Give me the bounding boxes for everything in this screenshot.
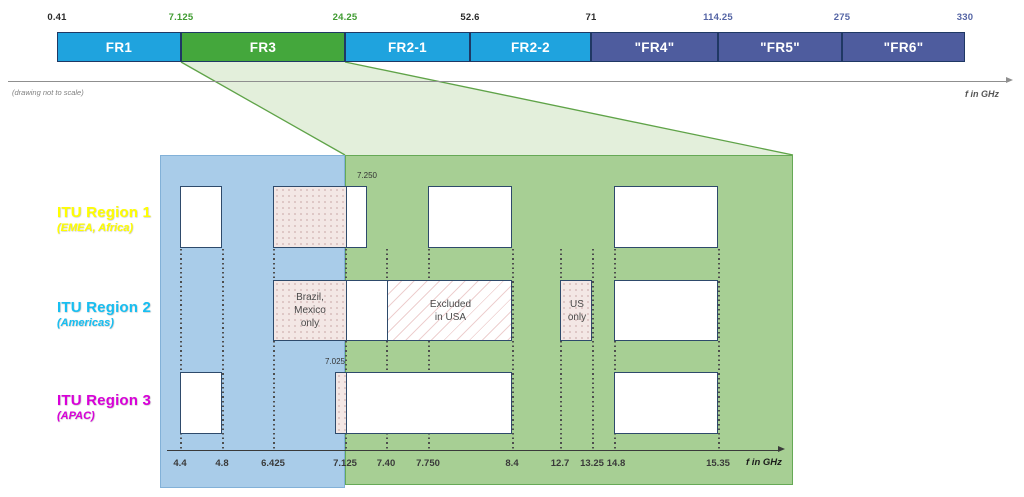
frequency-band: "FR4" bbox=[591, 32, 718, 62]
allocation-box-itu-region-3 bbox=[614, 372, 718, 434]
axis-tick-label: 4.4 bbox=[173, 458, 186, 469]
scale-note: (drawing not to scale) bbox=[12, 88, 84, 97]
allocation-box-itu-region-1 bbox=[273, 186, 367, 248]
allocation-box-itu-region-1 bbox=[614, 186, 718, 248]
frequency-band: FR1 bbox=[57, 32, 181, 62]
box-segment-hatch: Excluded in USA bbox=[387, 281, 512, 340]
spectrum-diagram: (drawing not to scale) f in GHz f in GHz… bbox=[0, 0, 1024, 497]
axis-tick-label: 4.8 bbox=[215, 458, 228, 469]
axis-tick-label: 7.750 bbox=[416, 458, 440, 469]
box-segment-pink bbox=[336, 373, 346, 433]
top-axis-line bbox=[8, 81, 1006, 82]
region-title: ITU Region 2 bbox=[57, 299, 151, 316]
allocation-box-itu-region-1 bbox=[428, 186, 512, 248]
box-frequency-label: 7.250 bbox=[357, 171, 377, 180]
top-axis-unit-label: f in GHz bbox=[965, 89, 999, 99]
axis-tick-label: 7.40 bbox=[377, 458, 396, 469]
axis-tick-label: 7.125 bbox=[333, 458, 357, 469]
frequency-band: FR2-2 bbox=[470, 32, 591, 62]
bottom-axis-line bbox=[167, 450, 778, 451]
segment-label: Brazil, Mexico only bbox=[274, 281, 346, 340]
axis-tick-label: 13.25 bbox=[580, 458, 604, 469]
segment-label: Excluded in USA bbox=[388, 281, 512, 340]
segment-label: US only bbox=[561, 281, 592, 340]
axis-tick-label: 14.8 bbox=[607, 458, 626, 469]
box-segment-white bbox=[346, 373, 512, 433]
box-segment-white bbox=[346, 281, 387, 340]
box-segment-pink: Brazil, Mexico only bbox=[274, 281, 346, 340]
region-label: ITU Region 3(APAC) bbox=[57, 392, 151, 423]
region-subtitle: (EMEA, Africa) bbox=[57, 221, 151, 235]
frequency-band: "FR5" bbox=[718, 32, 842, 62]
allocation-box-itu-region-2 bbox=[614, 280, 718, 341]
frequency-band: FR3 bbox=[181, 32, 345, 62]
region-label: ITU Region 1(EMEA, Africa) bbox=[57, 204, 151, 235]
box-segment-white bbox=[181, 187, 222, 247]
box-segment-pink bbox=[274, 187, 346, 247]
top-scale-tick-label: 0.41 bbox=[47, 12, 66, 23]
region-subtitle: (Americas) bbox=[57, 316, 151, 330]
top-scale-tick-label: 52.6 bbox=[460, 12, 479, 23]
axis-tick-label: 6.425 bbox=[261, 458, 285, 469]
bottom-axis-unit-label: f in GHz bbox=[746, 457, 782, 468]
dotted-guide-line bbox=[592, 249, 594, 450]
frequency-band: FR2-1 bbox=[345, 32, 470, 62]
dotted-guide-line bbox=[222, 249, 224, 450]
top-axis-arrow-icon bbox=[1006, 77, 1013, 83]
box-segment-white bbox=[346, 187, 367, 247]
top-scale-tick-label: 114.25 bbox=[703, 12, 733, 23]
axis-tick-label: 15.35 bbox=[706, 458, 730, 469]
box-segment-white bbox=[615, 373, 718, 433]
axis-tick-label: 12.7 bbox=[551, 458, 570, 469]
region-title: ITU Region 1 bbox=[57, 204, 151, 221]
box-segment-white bbox=[181, 373, 222, 433]
box-segment-pink: US only bbox=[561, 281, 592, 340]
top-scale-tick-label: 71 bbox=[586, 12, 597, 23]
allocation-box-itu-region-1 bbox=[180, 186, 222, 248]
box-segment-white bbox=[615, 187, 718, 247]
allocation-box-itu-region-3 bbox=[335, 372, 512, 434]
region-label: ITU Region 2(Americas) bbox=[57, 299, 151, 330]
region-subtitle: (APAC) bbox=[57, 409, 151, 423]
axis-tick-label: 8.4 bbox=[505, 458, 518, 469]
box-frequency-label: 7.025 bbox=[325, 357, 345, 366]
dotted-guide-line bbox=[718, 249, 720, 450]
allocation-box-itu-region-3 bbox=[180, 372, 222, 434]
top-scale-tick-label: 24.25 bbox=[333, 12, 358, 23]
box-segment-white bbox=[615, 281, 718, 340]
bottom-axis-arrow-icon bbox=[778, 446, 785, 452]
dotted-guide-line bbox=[512, 249, 514, 450]
box-segment-white bbox=[429, 187, 512, 247]
top-scale-tick-label: 330 bbox=[957, 12, 973, 23]
top-scale-tick-label: 7.125 bbox=[169, 12, 194, 23]
frequency-band: "FR6" bbox=[842, 32, 965, 62]
allocation-box-itu-region-2: US only bbox=[560, 280, 592, 341]
top-scale-tick-label: 275 bbox=[834, 12, 850, 23]
region-title: ITU Region 3 bbox=[57, 392, 151, 409]
allocation-box-itu-region-2: Brazil, Mexico onlyExcluded in USA bbox=[273, 280, 512, 341]
